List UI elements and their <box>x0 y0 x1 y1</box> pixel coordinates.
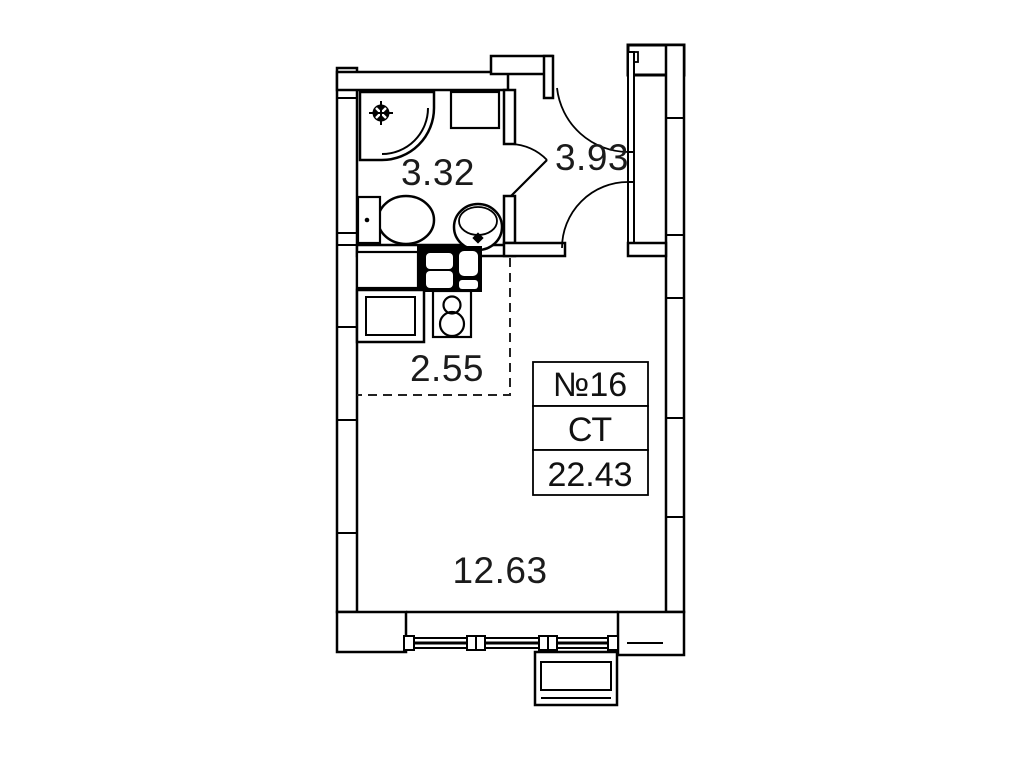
ac-basket <box>535 652 617 705</box>
floor-plan-canvas: 3.32 3.93 2.55 12.63 №16 СТ 22.43 <box>0 0 1023 768</box>
bathroom-east-wall-lower <box>504 196 515 243</box>
two-burner-stove <box>433 291 471 337</box>
living-room-area-label: 12.63 <box>452 550 547 591</box>
unit-info-box: №16 СТ 22.43 <box>533 362 648 495</box>
washing-machine <box>357 290 424 342</box>
hall-south-wall-left <box>504 243 565 256</box>
entrance-left-jamb <box>544 56 553 98</box>
bathroom-door-leaf <box>511 160 547 196</box>
unit-number-label: №16 <box>553 366 627 404</box>
washbasin <box>454 204 502 250</box>
kitchen-sink <box>417 246 482 292</box>
countertop <box>357 252 418 288</box>
bathroom-area-label: 3.32 <box>401 152 475 193</box>
storage-cabinet <box>451 92 499 128</box>
bathroom-north-wall <box>337 72 508 90</box>
right-exterior-wall <box>666 45 684 612</box>
hallway-area-label: 3.93 <box>555 137 629 178</box>
kitchen-zone-area-label: 2.55 <box>410 348 484 389</box>
bathroom-east-wall-upper <box>504 90 515 144</box>
hall-south-wall-right <box>628 243 666 256</box>
floor-plan-page: 3.32 3.93 2.55 12.63 №16 СТ 22.43 <box>0 0 1023 768</box>
triple-window <box>404 636 618 650</box>
bathroom-door-swing <box>511 144 547 160</box>
left-exterior-wall <box>337 68 357 612</box>
room-door-swing <box>562 182 628 248</box>
kitchen-fixtures <box>357 246 482 342</box>
corner-shower <box>360 92 434 160</box>
unit-type-label: СТ <box>568 411 612 449</box>
bottom-right-pier <box>618 612 684 655</box>
bottom-left-pier <box>337 612 406 652</box>
unit-total-area-label: 22.43 <box>547 456 632 494</box>
toilet <box>358 196 434 244</box>
